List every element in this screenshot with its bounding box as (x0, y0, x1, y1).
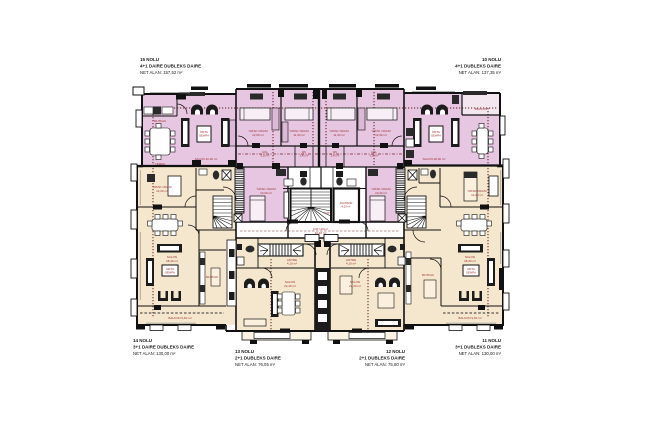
svg-text:22,40 m²: 22,40 m² (349, 284, 361, 288)
svg-text:SALON 28,60 m²: SALON 28,60 m² (423, 157, 446, 161)
svg-text:ASANSOR: ASANSOR (340, 201, 353, 205)
svg-text:3+1 DAIRE DUBLEKS DAIRE: 3+1 DAIRE DUBLEKS DAIRE (133, 345, 194, 350)
svg-text:WC: WC (333, 150, 337, 154)
svg-text:NET ALAN: 75,60 m²: NET ALAN: 75,60 m² (365, 362, 406, 367)
svg-text:4,10 m²: 4,10 m² (287, 262, 297, 266)
svg-text:BALKON: BALKON (475, 107, 487, 111)
svg-text:2+1 DUBLEKS DAIRE: 2+1 DUBLEKS DAIRE (235, 356, 281, 361)
svg-text:14 NOLU: 14 NOLU (133, 338, 152, 343)
svg-text:NET ALAN: 130,00 m²: NET ALAN: 130,00 m² (459, 351, 502, 356)
svg-text:4+1 DUBLEKS DAIRE: 4+1 DUBLEKS DAIRE (455, 64, 501, 69)
svg-text:2,40 m²: 2,40 m² (300, 154, 309, 158)
svg-text:14,20 m²: 14,20 m² (471, 193, 483, 197)
svg-text:13 NOLU: 13 NOLU (235, 349, 254, 354)
svg-text:4,10 m²: 4,10 m² (346, 262, 356, 266)
svg-text:22,40 m²: 22,40 m² (284, 284, 296, 288)
svg-text:NET ALAN: 137,35 m²: NET ALAN: 137,35 m² (459, 70, 502, 75)
svg-text:NET ALAN: 157,52 m²: NET ALAN: 157,52 m² (140, 70, 183, 75)
svg-text:BALKON 9,60 m²: BALKON 9,60 m² (168, 316, 191, 320)
svg-text:2,40 m²: 2,40 m² (331, 154, 340, 158)
svg-text:6,20 m²: 6,20 m² (261, 154, 270, 158)
svg-text:15 NOLU: 15 NOLU (140, 57, 159, 62)
svg-text:11,40 m²: 11,40 m² (293, 133, 305, 137)
svg-text:10 NOLU: 10 NOLU (482, 57, 501, 62)
svg-text:SEHPA: SEHPA (199, 134, 209, 138)
svg-text:MUTFAK: MUTFAK (154, 119, 166, 123)
svg-text:12,60 m²: 12,60 m² (252, 133, 264, 137)
svg-text:MUTFAK: MUTFAK (206, 275, 218, 279)
svg-text:12 NOLU: 12 NOLU (386, 349, 405, 354)
svg-text:14,20 m²: 14,20 m² (156, 189, 168, 193)
svg-text:SEHPA: SEHPA (431, 134, 441, 138)
svg-text:KAT: KAT (324, 211, 330, 215)
svg-text:WC: WC (302, 150, 306, 154)
svg-text:NET ALAN: 130,00 m²: NET ALAN: 130,00 m² (133, 351, 176, 356)
svg-text:11 NOLU: 11 NOLU (482, 338, 501, 343)
svg-text:11,40 m²: 11,40 m² (333, 133, 345, 137)
svg-text:13,20 m²: 13,20 m² (260, 191, 272, 195)
svg-text:YEMEK: YEMEK (155, 162, 166, 166)
svg-text:2+1 DUBLEKS DAIRE: 2+1 DUBLEKS DAIRE (359, 356, 405, 361)
svg-text:MUTFAK: MUTFAK (422, 273, 434, 277)
svg-text:13,20 m²: 13,20 m² (375, 191, 387, 195)
svg-text:3+1 DUBLEKS DAIRE: 3+1 DUBLEKS DAIRE (455, 345, 501, 350)
svg-text:4+1 DAIRE DUBLEKS DAIRE: 4+1 DAIRE DUBLEKS DAIRE (140, 64, 201, 69)
svg-text:HOL: HOL (371, 150, 377, 154)
svg-text:12,60 m²: 12,60 m² (375, 133, 387, 137)
svg-text:HOL: HOL (262, 150, 268, 154)
svg-text:BALKON 9,60 m²: BALKON 9,60 m² (458, 316, 481, 320)
svg-text:4,20 m²: 4,20 m² (342, 205, 351, 209)
svg-text:6,20 m²: 6,20 m² (370, 154, 379, 158)
svg-text:SEHPA: SEHPA (466, 271, 476, 275)
svg-text:NET ALAN: 76,05 m²: NET ALAN: 76,05 m² (235, 362, 276, 367)
svg-text:28,40 m²: 28,40 m² (166, 259, 178, 263)
svg-text:SEHPA: SEHPA (165, 271, 175, 275)
svg-text:28,40 m²: 28,40 m² (464, 259, 476, 263)
